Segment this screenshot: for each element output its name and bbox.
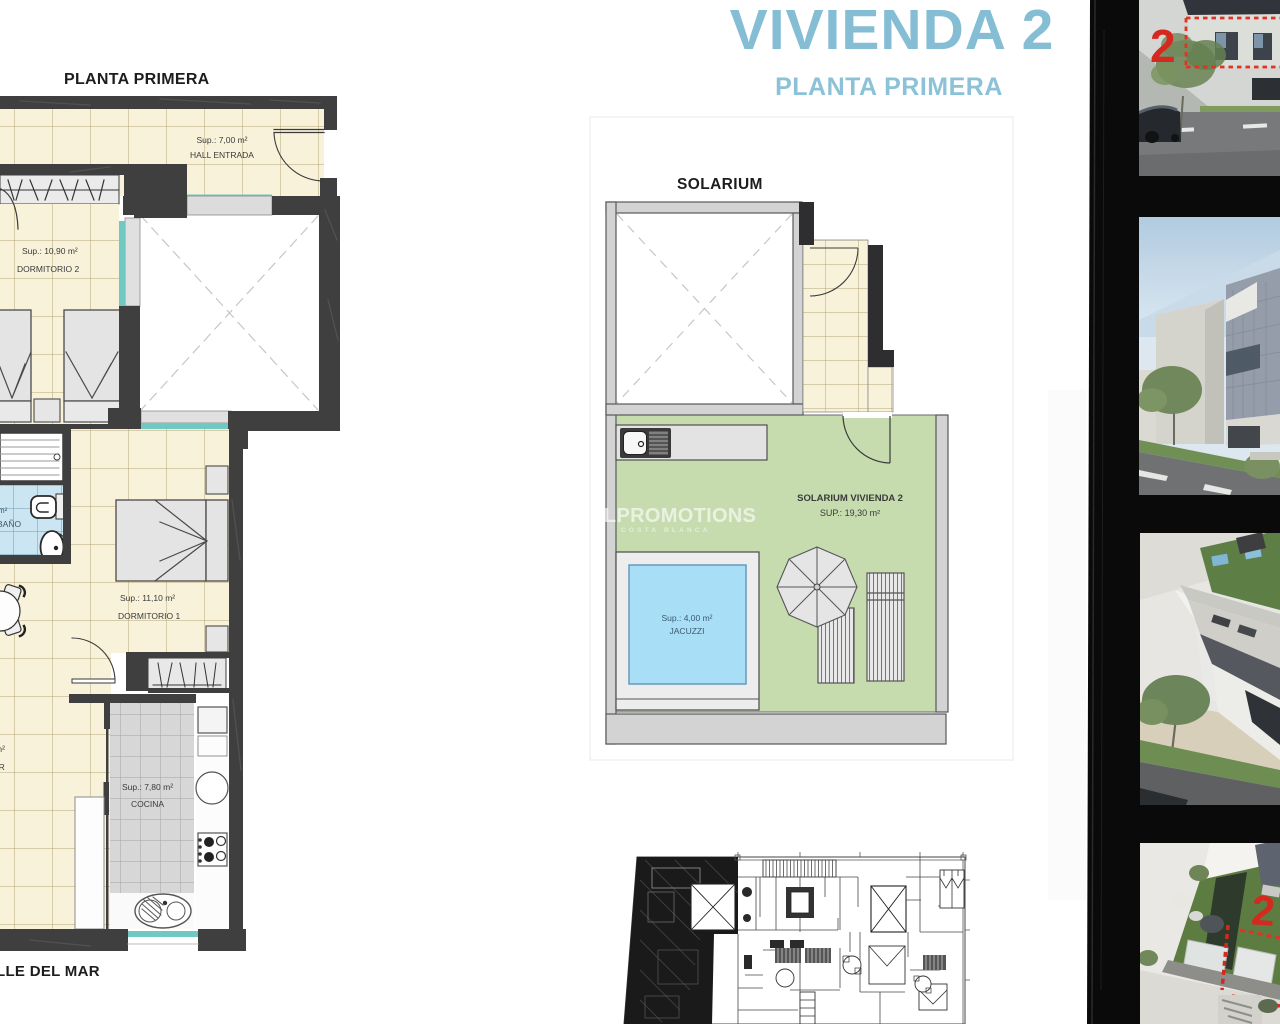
svg-text:JACUZZI: JACUZZI — [670, 626, 705, 636]
svg-text:Sup.: 7,80 m²: Sup.: 7,80 m² — [122, 782, 173, 792]
svg-text:COSTA BLANCA: COSTA BLANCA — [621, 527, 711, 534]
svg-text:SUP.: 19,30 m²: SUP.: 19,30 m² — [820, 508, 880, 518]
svg-text:LPROMOTIONS: LPROMOTIONS — [604, 505, 756, 527]
svg-text:PLANTA PRIMERA: PLANTA PRIMERA — [64, 71, 210, 88]
svg-text:COCINA: COCINA — [131, 799, 164, 809]
svg-text:Sup.: 11,10 m²: Sup.: 11,10 m² — [120, 593, 175, 603]
svg-text:DORMITORIO 2: DORMITORIO 2 — [17, 264, 79, 274]
svg-text:Sup.: 4,00 m²: Sup.: 4,00 m² — [661, 613, 712, 623]
svg-text:VIVIENDA 2: VIVIENDA 2 — [730, 0, 1055, 62]
svg-text:SOLARIUM: SOLARIUM — [677, 176, 763, 193]
svg-text:LLE DEL MAR: LLE DEL MAR — [0, 963, 100, 980]
svg-text:BAÑO: BAÑO — [0, 519, 21, 529]
svg-text:Sup.: 7,00 m²: Sup.: 7,00 m² — [196, 135, 247, 145]
svg-text:m²: m² — [0, 506, 8, 515]
svg-text:2: 2 — [1250, 886, 1277, 935]
svg-text:PLANTA PRIMERA: PLANTA PRIMERA — [775, 73, 1003, 101]
svg-text:OR: OR — [0, 762, 5, 772]
svg-text:SOLARIUM VIVIENDA 2: SOLARIUM VIVIENDA 2 — [797, 493, 903, 504]
svg-text:2: 2 — [1150, 20, 1176, 72]
svg-text:HALL ENTRADA: HALL ENTRADA — [190, 150, 254, 160]
svg-text:DORMITORIO 1: DORMITORIO 1 — [118, 611, 180, 621]
svg-text:m²: m² — [0, 744, 5, 754]
svg-text:Sup.: 10,90 m²: Sup.: 10,90 m² — [22, 246, 78, 256]
